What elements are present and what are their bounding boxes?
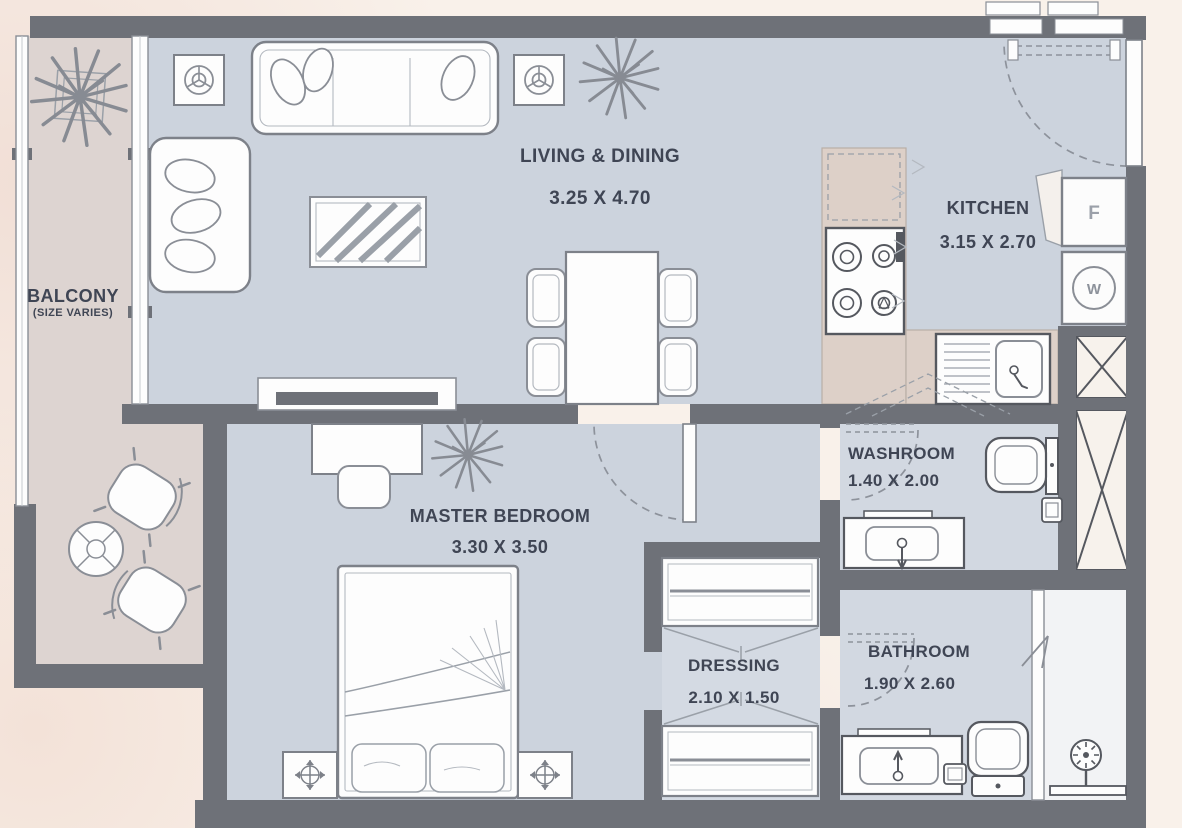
nightstand [518, 752, 572, 798]
wall-balcony-bottom [14, 664, 206, 688]
kitchen-sink [936, 334, 1050, 404]
wall-balcony-left [14, 504, 36, 688]
duct-shafts [1076, 336, 1128, 570]
wall-dressing-left-lower [644, 710, 662, 800]
wall-bottom [195, 800, 1146, 828]
kitchen-dims: 3.15 X 2.70 [918, 232, 1058, 253]
washing-machine: W [1062, 252, 1126, 324]
pillow [352, 744, 426, 792]
wall-shaft-left [1058, 326, 1076, 572]
dining-set [527, 252, 697, 404]
vanity-sink [844, 511, 964, 568]
washroom-dims: 1.40 X 2.00 [848, 471, 1018, 491]
wall-dressing-top [644, 542, 828, 558]
dining-table [566, 252, 658, 404]
vanity-sink [842, 729, 962, 794]
ceiling-light-icon [174, 55, 224, 105]
desk-chair [338, 466, 390, 508]
balcony-label: BALCONY [12, 286, 134, 307]
kitchen-label: KITCHEN [918, 198, 1058, 219]
entry-window-2 [1055, 19, 1123, 34]
tv-screen [276, 392, 438, 405]
balcony-table [69, 522, 123, 576]
dressing-dims: 2.10 X 1.50 [655, 688, 813, 708]
bed [338, 566, 518, 798]
wall-hall-stub [820, 404, 840, 428]
floor-plan-drawing: F W [0, 0, 1182, 828]
wall-right-upper [1126, 16, 1146, 40]
shower-glass [1032, 590, 1044, 800]
cooktop [826, 228, 904, 334]
wall-right [1126, 166, 1146, 828]
washer-label: W [1087, 281, 1102, 298]
wall-top [30, 16, 1146, 38]
ceiling-light-icon [514, 55, 564, 105]
living-dining-label: LIVING & DINING [455, 146, 745, 168]
wall-shaft-divider [1058, 398, 1128, 410]
wall-living-bedroom-right [690, 404, 840, 424]
fridge-label: F [1088, 203, 1100, 224]
wall-balcony-bedroom [203, 412, 227, 800]
wall-washroom-bathroom [820, 570, 1128, 590]
bathroom-label: BATHROOM [868, 642, 1038, 662]
wardrobe-bottom [662, 726, 818, 796]
exterior-box-1 [986, 2, 1040, 15]
wall-hall-washroom [820, 500, 840, 636]
wall-dressing-left-upper [644, 558, 662, 652]
washroom-label: WASHROOM [848, 444, 1018, 464]
exterior-box-2 [1048, 2, 1098, 15]
nightstand [283, 752, 337, 798]
wall-shaft-cap-top [1058, 326, 1128, 336]
master-bedroom-label: MASTER BEDROOM [360, 506, 640, 527]
wall-kitchen-washroom [840, 404, 1058, 424]
wardrobe-top [662, 558, 818, 626]
tv-console [258, 378, 456, 410]
balcony-note: (SIZE VARIES) [12, 307, 134, 319]
entry-window-1 [990, 19, 1042, 34]
wall-hall-bathroom [820, 708, 840, 800]
master-bedroom-dims: 3.30 X 3.50 [360, 537, 640, 558]
pillow [430, 744, 504, 792]
armchair [150, 138, 250, 292]
floor-plan: F W [0, 0, 1182, 828]
dressing-label: DRESSING [655, 656, 813, 676]
rug [310, 197, 426, 267]
living-dining-dims: 3.25 X 4.70 [455, 188, 745, 210]
bathroom-dims: 1.90 X 2.60 [864, 674, 1034, 694]
shower-drain [1050, 786, 1126, 795]
sofa [252, 42, 498, 134]
